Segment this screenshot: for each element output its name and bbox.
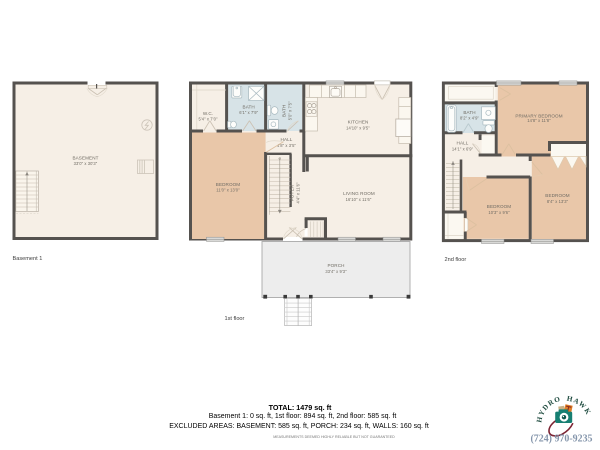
svg-text:HALL: HALL [457, 140, 469, 145]
svg-text:TOTAL: 1479 sq. ft: TOTAL: 1479 sq. ft [269, 403, 332, 412]
svg-text:8'4" x 13'3": 8'4" x 13'3" [547, 199, 569, 204]
svg-text:BATH: BATH [463, 110, 475, 115]
svg-text:4'4" x 11'6": 4'4" x 11'6" [296, 182, 301, 204]
svg-text:16'10" x 11'6": 16'10" x 11'6" [346, 197, 372, 202]
svg-text:FOYER: FOYER [290, 184, 295, 201]
svg-text:KITCHEN: KITCHEN [348, 120, 369, 125]
svg-text:6'1" x 7'9": 6'1" x 7'9" [239, 110, 258, 115]
svg-text:BEDROOM: BEDROOM [216, 182, 241, 187]
svg-text:MEASUREMENTS DEEMED HIGHLY REL: MEASUREMENTS DEEMED HIGHLY RELIABLE BUT … [273, 435, 395, 439]
svg-text:10'3" x 9'6": 10'3" x 9'6" [488, 210, 510, 215]
svg-text:33'0" x 30'3": 33'0" x 30'3" [74, 161, 98, 166]
svg-text:BEDROOM: BEDROOM [487, 204, 512, 209]
svg-text:BEDROOM: BEDROOM [545, 193, 570, 198]
svg-text:11'0" x 13'0": 11'0" x 13'0" [216, 187, 240, 192]
svg-text:BATH: BATH [243, 105, 255, 110]
svg-text:Basement 1: 0 sq. ft, 1st floo: Basement 1: 0 sq. ft, 1st floor: 894 sq.… [209, 413, 397, 420]
svg-text:1st floor: 1st floor [225, 316, 245, 322]
svg-text:LIVING ROOM: LIVING ROOM [343, 191, 375, 196]
svg-text:2nd floor: 2nd floor [445, 257, 467, 263]
svg-text:14'8" x 11'8": 14'8" x 11'8" [527, 118, 551, 123]
svg-text:14'1" x 6'9": 14'1" x 6'9" [452, 147, 474, 152]
svg-text:33'4" x 9'3": 33'4" x 9'3" [325, 269, 347, 274]
svg-text:5'4" x 7'0": 5'4" x 7'0" [199, 117, 218, 122]
svg-text:5'0" x 7'5": 5'0" x 7'5" [288, 101, 293, 120]
svg-text:PORCH: PORCH [327, 263, 344, 268]
svg-text:8'2" x 4'9": 8'2" x 4'9" [460, 115, 479, 120]
svg-text:EXCLUDED AREAS: BASEMENT: 585: EXCLUDED AREAS: BASEMENT: 585 sq. ft, PO… [169, 423, 429, 430]
svg-text:Basement 1: Basement 1 [13, 256, 43, 262]
svg-text:14'10" x 9'5": 14'10" x 9'5" [346, 125, 370, 130]
svg-text:W.C.: W.C. [203, 111, 213, 116]
svg-text:BASEMENT: BASEMENT [72, 155, 98, 160]
svg-text:(724) 970-9235: (724) 970-9235 [531, 434, 593, 445]
svg-text:BATH: BATH [282, 105, 287, 117]
